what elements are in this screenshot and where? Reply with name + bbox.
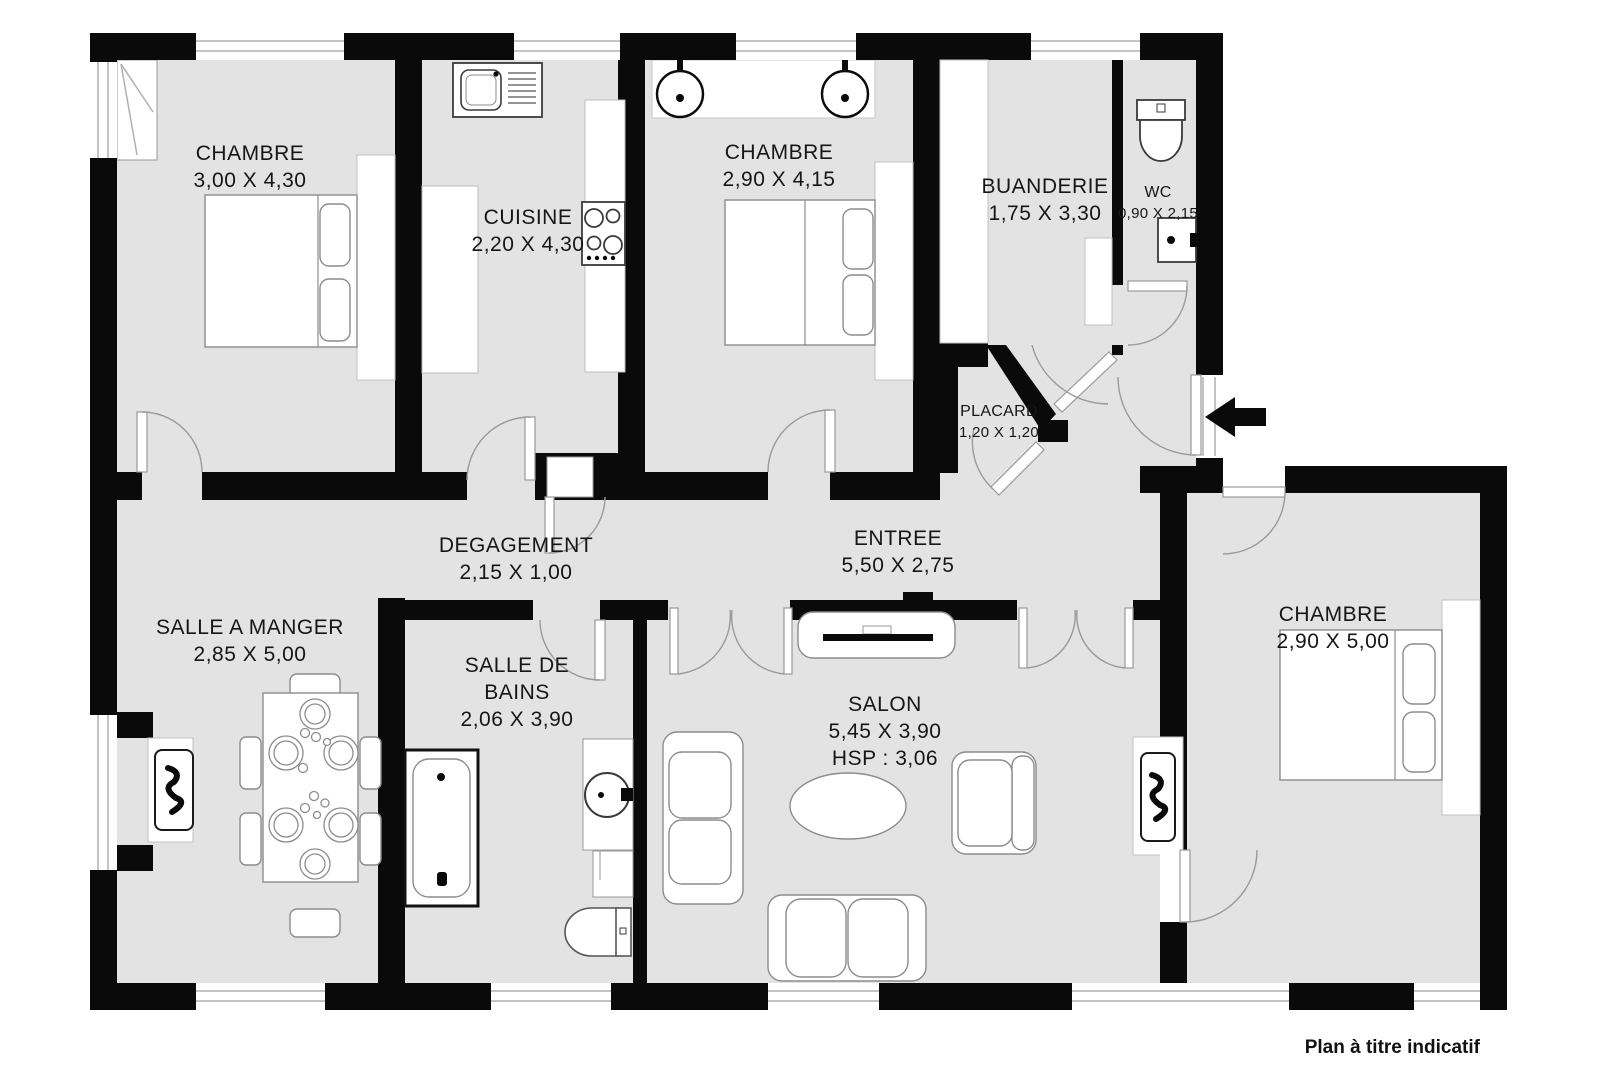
dims-bedroom-1: 3,00 X 4,30 bbox=[194, 169, 307, 192]
window-bottom-4 bbox=[1072, 983, 1289, 1010]
plan-disclaimer: Plan à titre indicatif bbox=[1305, 1037, 1481, 1058]
label-laundry: BUANDERIE bbox=[981, 175, 1108, 198]
living-radiator bbox=[1133, 737, 1183, 855]
wc-toilet bbox=[1137, 100, 1185, 161]
dims-living-room: 5,45 X 3,90 bbox=[829, 720, 942, 743]
ceiling-living-room: HSP : 3,06 bbox=[832, 747, 938, 770]
window-bottom-2 bbox=[491, 983, 611, 1010]
sofa-left bbox=[663, 732, 743, 904]
label-hallway: DEGAGEMENT bbox=[439, 534, 593, 557]
label-wc: WC bbox=[1144, 184, 1171, 201]
label-bedroom-3: CHAMBRE bbox=[1279, 603, 1388, 626]
coffee-table bbox=[790, 773, 906, 839]
label-kitchen: CUISINE bbox=[484, 206, 573, 229]
window-top-1 bbox=[196, 33, 344, 60]
dims-wc: 0,90 X 2,15 bbox=[1118, 205, 1198, 222]
dims-entrance: 5,50 X 2,75 bbox=[842, 554, 955, 577]
window-left-2 bbox=[90, 715, 117, 870]
dining-radiator bbox=[148, 738, 193, 842]
bathroom-toilet bbox=[565, 908, 631, 956]
dims-laundry: 1,75 X 3,30 bbox=[989, 202, 1102, 225]
label-bedroom-2: CHAMBRE bbox=[725, 141, 834, 164]
window-top-2 bbox=[514, 33, 620, 60]
label-bathroom-1: SALLE DE bbox=[465, 654, 569, 677]
window-top-3 bbox=[736, 33, 856, 60]
label-closet: PLACARD bbox=[960, 403, 1038, 420]
sofa-bottom bbox=[768, 895, 926, 981]
dims-dining-room: 2,85 X 5,00 bbox=[194, 643, 307, 666]
window-bottom-3 bbox=[768, 983, 879, 1010]
kitchen-stove bbox=[582, 202, 625, 265]
hallway-closet-niche bbox=[547, 457, 593, 497]
bathtub bbox=[405, 750, 478, 906]
fireplace bbox=[798, 612, 955, 658]
window-bottom-5 bbox=[1414, 983, 1480, 1010]
label-entrance: ENTREE bbox=[854, 527, 942, 550]
dims-bedroom-3: 2,90 X 5,00 bbox=[1277, 630, 1390, 653]
dims-kitchen: 2,20 X 4,30 bbox=[472, 233, 585, 256]
kitchen-sink bbox=[453, 63, 542, 117]
armchair bbox=[952, 752, 1036, 854]
dims-hallway: 2,15 X 1,00 bbox=[460, 561, 573, 584]
floor-plan-page: CHAMBRE 3,00 X 4,30 CUISINE 2,20 X 4,30 … bbox=[0, 0, 1600, 1066]
label-bedroom-1: CHAMBRE bbox=[196, 142, 305, 165]
window-bottom-1 bbox=[196, 983, 325, 1010]
dims-bedroom-2: 2,90 X 4,15 bbox=[723, 168, 836, 191]
window-left-1 bbox=[90, 62, 117, 158]
window-top-4 bbox=[1031, 33, 1140, 60]
label-living-room: SALON bbox=[848, 693, 922, 716]
floor-plan-drawing: CHAMBRE 3,00 X 4,30 CUISINE 2,20 X 4,30 … bbox=[0, 0, 1600, 1066]
label-bathroom-2: BAINS bbox=[484, 681, 550, 704]
wc-sink bbox=[1158, 218, 1200, 262]
dims-bathroom: 2,06 X 3,90 bbox=[461, 708, 574, 731]
dims-closet: 1,20 X 1,20 bbox=[959, 424, 1039, 441]
label-dining-room: SALLE A MANGER bbox=[156, 616, 344, 639]
